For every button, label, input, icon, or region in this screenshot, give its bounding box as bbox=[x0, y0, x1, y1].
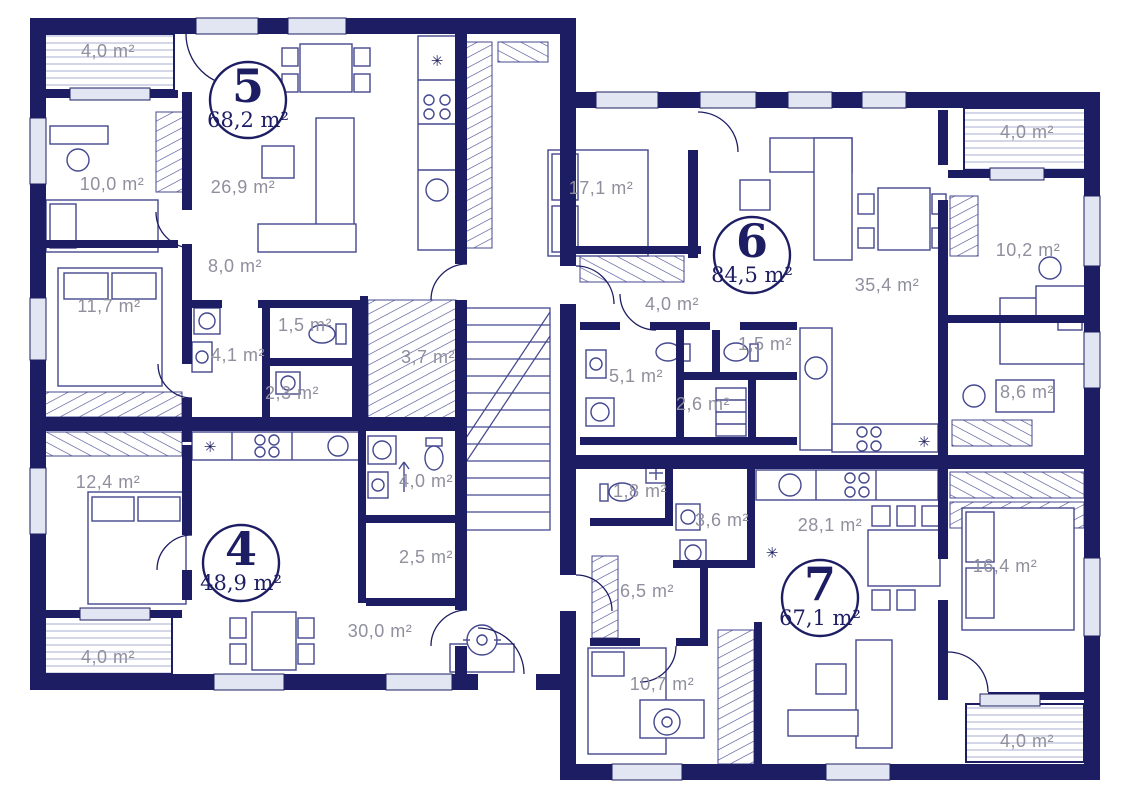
fridge-icon: ✳ bbox=[766, 544, 779, 562]
sink-icon bbox=[192, 342, 212, 372]
fridge-icon: ✳ bbox=[918, 433, 931, 451]
apartment-badge: 448,9 m² bbox=[200, 522, 282, 601]
room-area-label: 1,5 m² bbox=[278, 315, 332, 335]
kitchen-counter bbox=[192, 432, 364, 460]
floor-plan-drawing: ✳ ✳ ✳ ✳ bbox=[0, 0, 1129, 800]
room-area-label: 8,0 m² bbox=[208, 256, 262, 276]
room-area-label: 10,2 m² bbox=[996, 240, 1061, 260]
apartment-area: 84,5 m² bbox=[711, 263, 793, 287]
room-area-label: 3,7 m² bbox=[401, 347, 455, 367]
walls bbox=[30, 18, 1100, 780]
fridge-icon: ✳ bbox=[204, 438, 217, 456]
washer-icon bbox=[586, 398, 614, 426]
room-area-label: 28,1 m² bbox=[798, 515, 863, 535]
apartment-number: 5 bbox=[232, 59, 264, 113]
bed-icon bbox=[88, 492, 186, 604]
apartment-badge: 684,5 m² bbox=[711, 214, 793, 293]
balcony-area-label: 4,0 m² bbox=[1000, 731, 1054, 751]
balcony-area-label: 4,0 m² bbox=[1000, 122, 1054, 142]
toilet-icon bbox=[425, 438, 443, 470]
room-area-label: 3,6 m² bbox=[695, 510, 749, 530]
room-area-label: 6,5 m² bbox=[620, 581, 674, 601]
sink-icon bbox=[586, 350, 606, 378]
room-area-label: 1,8 m² bbox=[613, 481, 667, 501]
washer-icon bbox=[368, 436, 396, 464]
room-area-label: 30,0 m² bbox=[348, 621, 413, 641]
room-area-label: 35,4 m² bbox=[855, 275, 920, 295]
apartment-area: 67,1 m² bbox=[779, 606, 861, 630]
room-area-label: 4,1 m² bbox=[211, 345, 265, 365]
washer-icon bbox=[194, 308, 220, 334]
room-area-label: 26,9 m² bbox=[211, 177, 276, 197]
dining-table-icon bbox=[858, 188, 946, 250]
room-area-label: 2,6 m² bbox=[676, 394, 730, 414]
room-area-label: 10,7 m² bbox=[630, 674, 695, 694]
room-area-label: 17,1 m² bbox=[569, 178, 634, 198]
sink-icon bbox=[368, 472, 388, 498]
dining-table-icon bbox=[230, 612, 314, 670]
table-icon bbox=[640, 700, 704, 738]
apartment-number: 6 bbox=[736, 214, 768, 268]
apartment-area: 68,2 m² bbox=[207, 108, 289, 132]
room-area-label: 2,5 m² bbox=[399, 547, 453, 567]
room-area-label: 10,0 m² bbox=[80, 174, 145, 194]
toilet-icon bbox=[656, 343, 690, 361]
apartment-number: 4 bbox=[225, 522, 257, 576]
kitchen-counter bbox=[756, 470, 938, 500]
dining-table-icon bbox=[282, 44, 370, 92]
desk-icon bbox=[50, 126, 108, 171]
room-area-label: 2,3 m² bbox=[265, 383, 319, 403]
room-area-label: 5,1 m² bbox=[609, 366, 663, 386]
balcony-area-label: 4,0 m² bbox=[81, 647, 135, 667]
room-area-label: 12,4 m² bbox=[76, 472, 141, 492]
room-area-label: 1,5 m² bbox=[738, 334, 792, 354]
sofa-icon bbox=[788, 640, 892, 748]
apartment-badge: 568,2 m² bbox=[207, 59, 289, 138]
apartment-area: 48,9 m² bbox=[200, 571, 282, 595]
balcony-area-label: 4,0 m² bbox=[81, 41, 135, 61]
apartment-badge: 767,1 m² bbox=[779, 557, 861, 636]
bed-icon bbox=[58, 268, 162, 386]
room-area-label: 4,0 m² bbox=[645, 294, 699, 314]
room-area-label: 16,4 m² bbox=[973, 556, 1038, 576]
fridge-icon: ✳ bbox=[431, 52, 444, 70]
room-area-label: 8,6 m² bbox=[1000, 382, 1054, 402]
dining-table-icon bbox=[868, 506, 940, 610]
room-area-label: 4,0 m² bbox=[399, 471, 453, 491]
desk-icon bbox=[1036, 257, 1086, 316]
room-area-label: 11,7 m² bbox=[77, 296, 140, 316]
floor-plan-page: ✳ ✳ ✳ ✳ bbox=[0, 0, 1129, 800]
apartment-number: 7 bbox=[804, 557, 836, 611]
staircase bbox=[466, 308, 550, 530]
